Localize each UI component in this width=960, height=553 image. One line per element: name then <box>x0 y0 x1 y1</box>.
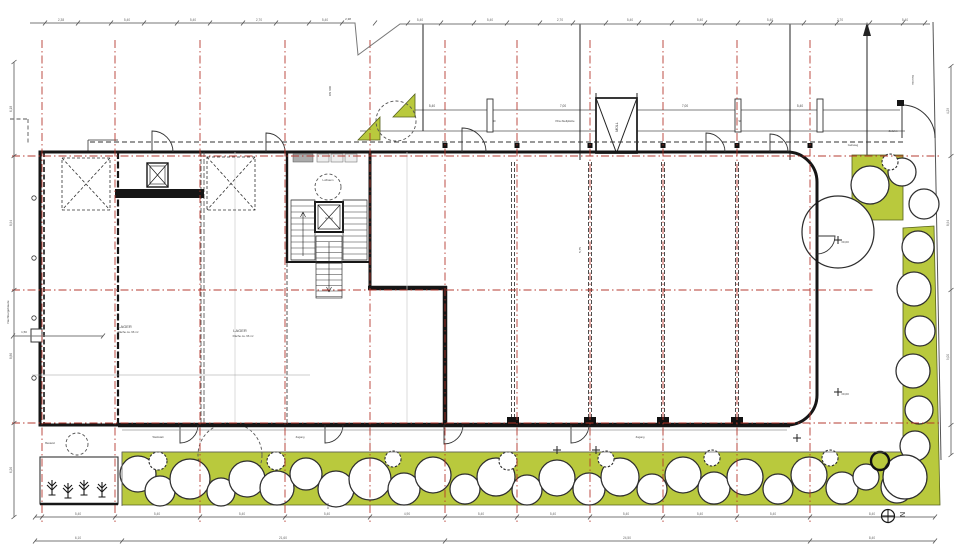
dimension-tick <box>703 21 707 26</box>
bush <box>385 451 401 467</box>
interior-wall-bar <box>115 189 204 198</box>
north-arrow: N <box>882 510 908 523</box>
dimension-value: 24,50 <box>623 536 631 540</box>
door-swing <box>571 425 589 443</box>
dimension-chain-top: 2,385,405,402,705,405,405,402,705,405,40… <box>30 18 930 55</box>
plan-label: 0,90 <box>326 503 330 509</box>
dimension-tick <box>406 21 410 26</box>
plan-label: 7,00 <box>682 104 688 108</box>
site-plan-canvas: 2,385,405,402,705,405,405,402,705,405,40… <box>0 0 960 553</box>
plan-label: Bestand <box>45 441 55 445</box>
tree <box>573 473 605 505</box>
plan-label: 5,40 <box>797 104 803 108</box>
existing-tree-dashed <box>376 101 416 141</box>
plan-label: Luftraum <box>322 178 334 182</box>
door-swing <box>266 133 285 152</box>
existing-tree-dashed <box>66 433 88 455</box>
tree <box>902 231 934 263</box>
plan-label: 90 <box>492 119 496 123</box>
tree <box>512 475 542 505</box>
door-swing <box>444 425 463 444</box>
plan-label: Zugang <box>296 435 305 439</box>
unit-partition <box>512 162 515 423</box>
tree <box>896 354 930 388</box>
dimension-value: 5,40 <box>154 512 160 516</box>
dimension-value: 5,40 <box>623 512 629 516</box>
dimension-value: 5,40 <box>324 512 330 516</box>
tree <box>170 459 210 499</box>
dimension-tick <box>571 21 575 26</box>
tree <box>727 459 763 495</box>
plan-label: 7,00 <box>560 104 566 108</box>
floor-plan-sheet: 2,385,405,402,705,405,405,402,705,405,40… <box>0 0 960 553</box>
dimension-value: 2,70 <box>557 18 563 22</box>
dimension-chain-bottom-1: 5,405,405,405,404,905,405,405,405,405,40… <box>33 512 937 520</box>
dimension-chain-right: 4,298,949,00 <box>946 64 954 457</box>
dimension-value: 8,94 <box>946 220 950 226</box>
dimension-value: 2,70 <box>837 18 843 22</box>
building <box>31 128 835 444</box>
dimension-chain-left: 6,188,948,866,26 <box>9 60 17 519</box>
plan-label: Zugang <box>636 435 645 439</box>
bush <box>499 452 517 470</box>
door-swing <box>180 425 198 443</box>
tree <box>791 457 827 493</box>
dimension-value: 8,94 <box>9 220 13 226</box>
tree <box>905 396 933 424</box>
plan-label: 1,50 <box>21 330 27 334</box>
dimension-value: 6,10 <box>75 536 81 540</box>
dimension-value: 5,40 <box>75 512 81 516</box>
dimension-value: 4,29 <box>946 108 950 114</box>
door-swing <box>462 128 486 152</box>
planting-triangle <box>393 94 415 117</box>
dimension-tick <box>802 21 806 26</box>
dimension-line <box>30 23 930 55</box>
dimension-tick <box>923 21 927 26</box>
dimension-value: 5,40 <box>487 18 493 22</box>
structural-grid <box>12 40 940 522</box>
tree <box>698 472 730 504</box>
dimension-value: 5,40 <box>767 18 773 22</box>
dimension-tick <box>472 21 476 26</box>
dimension-value: 2,38 <box>58 18 64 22</box>
dimension-tick <box>439 21 443 26</box>
roof-opening <box>62 158 110 210</box>
dimension-tick <box>538 21 542 26</box>
dimension-value: 2,70 <box>256 18 262 22</box>
tree <box>229 461 265 497</box>
dimension-value: 5,40 <box>770 512 776 516</box>
planter-bed <box>40 457 118 504</box>
plan-label: MÜLL <box>615 122 619 132</box>
walkway-dividers <box>200 430 737 452</box>
fence-post <box>487 99 493 132</box>
plan-label: LAGER <box>118 324 132 329</box>
tree <box>637 474 667 504</box>
plan-label: LAGER <box>233 328 247 333</box>
tree <box>763 474 793 504</box>
plan-label: 5,40 <box>429 104 435 108</box>
plan-label: Grenze <box>911 75 915 85</box>
plan-label: Pkw-Stellplätze <box>555 119 575 123</box>
plan-label: ±0,00 <box>841 240 849 244</box>
dimension-value: 21,60 <box>279 536 287 540</box>
dimension-value: 8,86 <box>9 353 13 359</box>
plan-label: 2,38 <box>345 17 351 21</box>
dimension-value: 5,40 <box>478 512 484 516</box>
dimension-value: 5,40 <box>124 18 130 22</box>
bush <box>598 451 614 467</box>
dimension-tick <box>868 21 872 26</box>
plan-label: ±0,00 <box>841 392 849 396</box>
dimension-value: 8,40 <box>869 512 875 516</box>
dimension-value: 6,26 <box>9 467 13 473</box>
tree <box>909 189 939 219</box>
dimension-tick <box>604 21 608 26</box>
site-boundary <box>10 22 941 460</box>
plan-label: Gehweg <box>848 143 859 147</box>
dimension-value: 5,40 <box>550 512 556 516</box>
tree <box>665 457 701 493</box>
north-label: N <box>900 512 907 517</box>
tree <box>415 457 451 493</box>
unit-partitions <box>443 143 813 425</box>
dimension-tick <box>505 21 509 26</box>
fence-post <box>735 99 741 132</box>
plan-label: Nachbargebäude <box>6 300 10 323</box>
door-swing <box>325 425 343 443</box>
bush <box>267 452 285 470</box>
plan-label: Werkstatt <box>153 435 164 439</box>
dimension-value: 5,40 <box>417 18 423 22</box>
dimension-value: 5,40 <box>697 18 703 22</box>
door-swing <box>152 131 173 152</box>
plan-label: Aufzug <box>325 216 334 220</box>
tree <box>851 166 889 204</box>
dimension-value: 8,40 <box>869 536 875 540</box>
dimension-value: 5,40 <box>239 512 245 516</box>
dimension-value: 6,18 <box>9 106 13 112</box>
tree <box>260 471 294 505</box>
front-yard <box>88 22 935 160</box>
plan-label: DN 600 <box>328 86 332 97</box>
plan-label: Fläche ca. 96 m² <box>233 334 254 338</box>
dimension-value: 5,40 <box>190 18 196 22</box>
elevation-cross-icon <box>793 434 801 442</box>
planting-triangle <box>358 117 380 140</box>
fence-posts <box>487 99 823 132</box>
tree <box>539 460 575 496</box>
dimension-value: 5,40 <box>322 18 328 22</box>
left-boundary-notch <box>10 119 28 143</box>
staircase <box>291 154 367 298</box>
dimension-tick <box>670 21 674 26</box>
shaft <box>147 163 168 187</box>
dimension-tick <box>373 21 377 26</box>
dimension-value: 5,40 <box>697 512 703 516</box>
plan-label: 90 <box>738 119 742 123</box>
dimension-chain-small <box>11 334 105 339</box>
dimension-value: 4,90 <box>404 512 410 516</box>
tree <box>290 458 322 490</box>
door-swing <box>770 134 788 152</box>
roof-opening <box>207 157 255 210</box>
dimension-chain-bottom-2: 6,1021,6024,508,40 <box>33 536 937 544</box>
dimension-tick <box>637 21 641 26</box>
plan-label: Fläche ca. 96 m² <box>118 330 139 334</box>
dimension-tick <box>736 21 740 26</box>
gate-swing-arc <box>902 105 935 138</box>
tree <box>802 196 874 268</box>
plan-label: 5,75 <box>578 247 582 253</box>
bush <box>149 452 167 470</box>
dimension-value: 5,40 <box>627 18 633 22</box>
fence-post <box>817 99 823 132</box>
gate-post <box>897 100 904 106</box>
dimension-value: 9,00 <box>946 354 950 360</box>
door-swing <box>706 133 725 152</box>
tree <box>897 272 931 306</box>
dimension-value: 5,40 <box>902 18 908 22</box>
tree <box>905 316 935 346</box>
plan-label: Zufahrt <box>889 129 898 133</box>
tree <box>450 474 480 504</box>
doors <box>152 128 835 444</box>
